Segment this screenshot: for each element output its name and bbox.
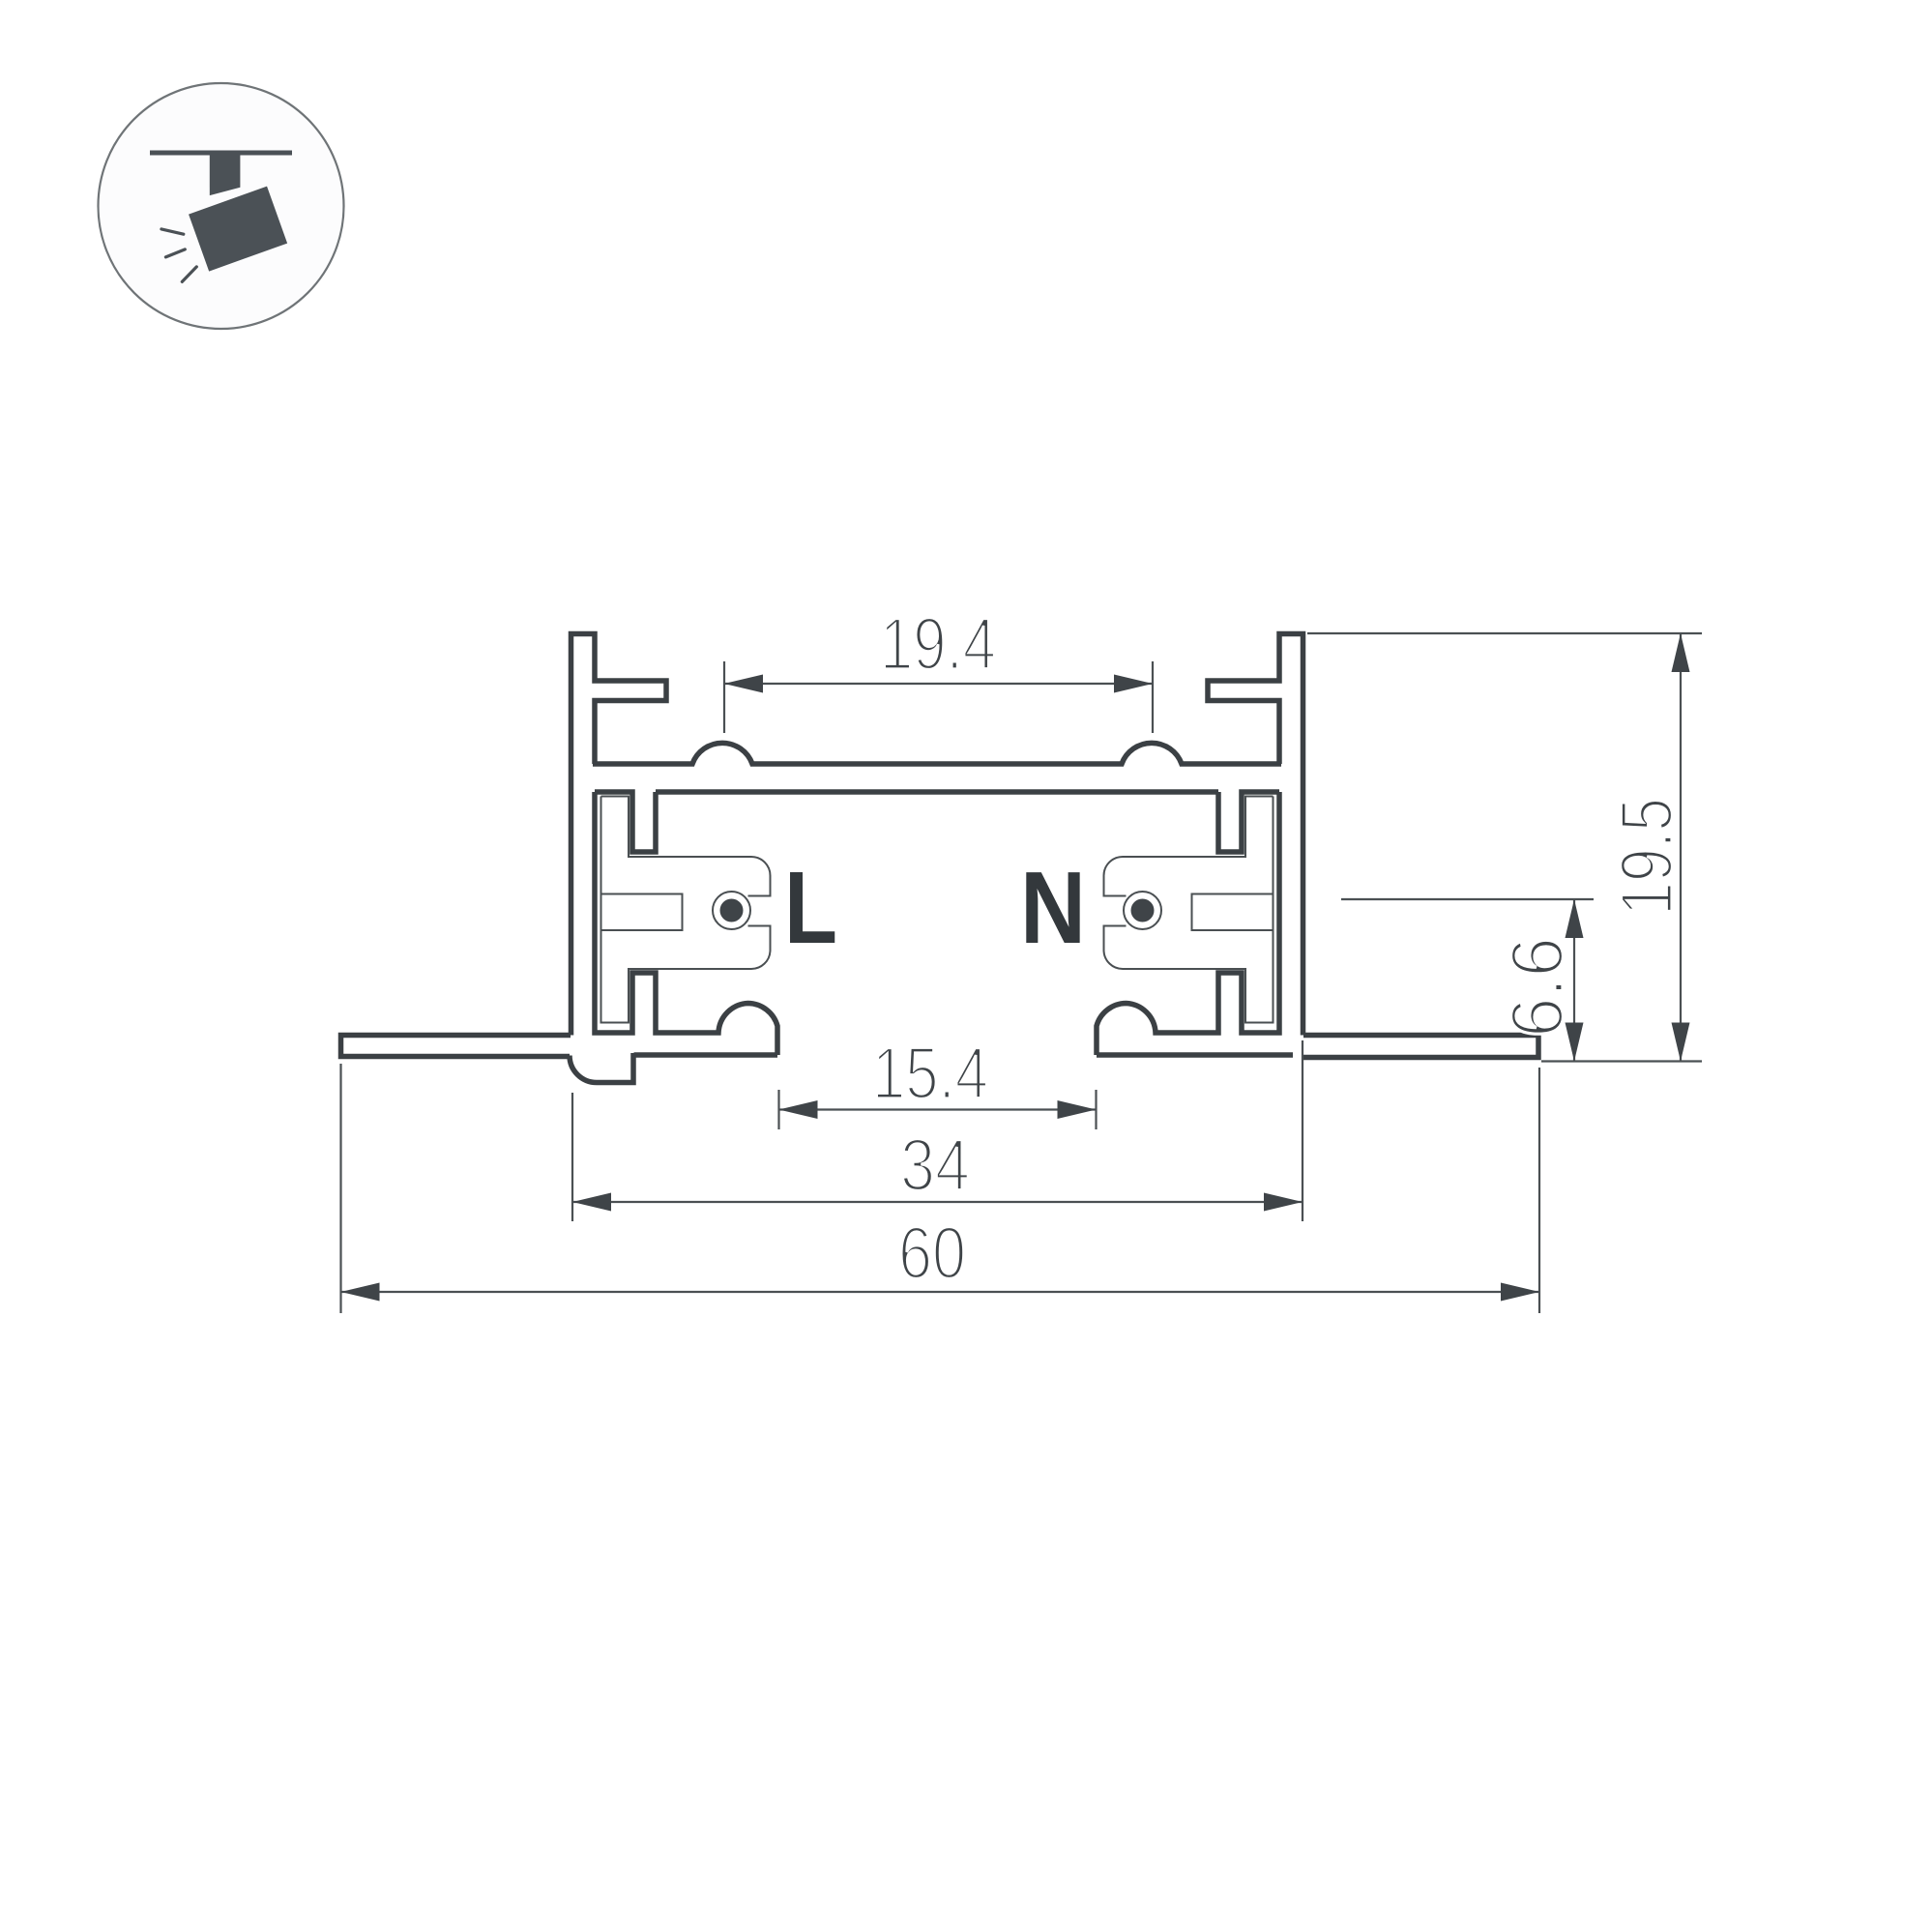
svg-text:L: L <box>784 851 837 965</box>
svg-text:60: 60 <box>898 1213 966 1295</box>
svg-text:19.5: 19.5 <box>1606 798 1688 916</box>
svg-text:N: N <box>1020 851 1086 965</box>
svg-text:6.6: 6.6 <box>1497 937 1579 1038</box>
svg-text:19.4: 19.4 <box>880 603 996 686</box>
svg-text:34: 34 <box>900 1125 970 1207</box>
svg-text:15.4: 15.4 <box>872 1033 988 1115</box>
